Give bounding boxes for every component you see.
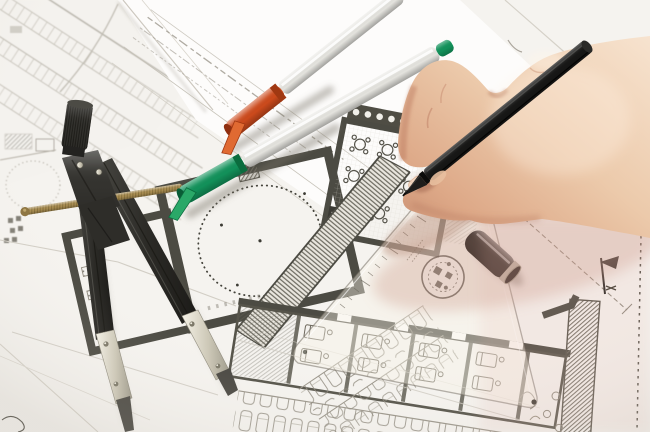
photo-canvas [0,0,650,432]
photo-vignette [0,0,650,432]
